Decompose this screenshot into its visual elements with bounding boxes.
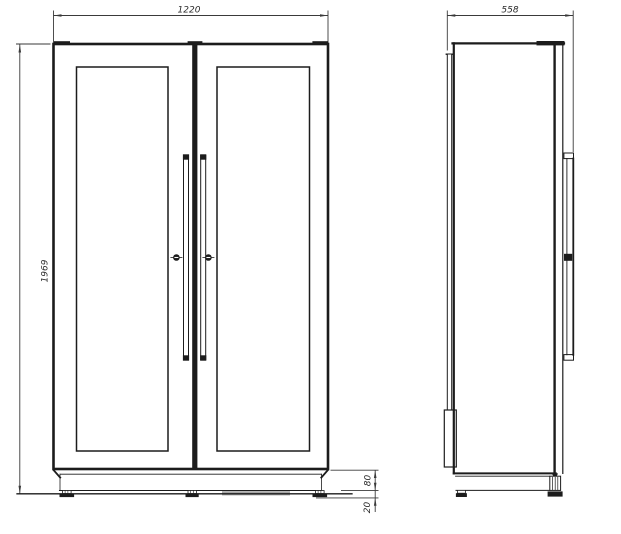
drawing-sheet: 1220 1969 <box>0 0 621 534</box>
foot-screw <box>188 491 197 494</box>
handle-cap <box>200 355 206 360</box>
dimension-clearance-label: 20 <box>363 502 373 514</box>
foot-screw <box>457 490 465 493</box>
cabinet-outline <box>54 44 329 469</box>
cabinet-side <box>444 41 573 497</box>
foot-front-side <box>548 473 563 496</box>
handle-cap <box>183 154 189 159</box>
top-hinge-left <box>54 41 70 45</box>
handle-left <box>183 154 189 360</box>
arrowhead-icon <box>374 483 377 491</box>
dimension-width-label: 1220 <box>178 6 201 16</box>
dimension-height: 1969 <box>16 44 51 494</box>
plinth-side <box>456 476 550 490</box>
dimension-depth-label: 558 <box>501 6 518 16</box>
corner-bevel <box>321 470 327 477</box>
side-view: 558 <box>444 6 573 498</box>
handle-side-profile <box>564 153 574 360</box>
top-hinge-right <box>312 41 328 45</box>
arrowhead-icon <box>19 45 22 53</box>
handle-bracket <box>564 355 574 361</box>
dimension-plinth-label: 80 <box>364 475 374 487</box>
foot-screw <box>316 491 325 494</box>
lock-block <box>564 254 572 261</box>
arrowhead-icon <box>19 486 22 494</box>
handle-cap <box>183 355 189 360</box>
back-rail <box>447 54 451 410</box>
arrowhead-icon <box>374 498 377 506</box>
front-view: 1220 1969 <box>16 6 379 514</box>
technical-drawing: 1220 1969 <box>0 0 621 534</box>
foot-plate <box>548 491 563 496</box>
arrowhead-icon <box>374 470 377 478</box>
arrowhead-icon <box>447 14 455 17</box>
door-divider <box>192 44 197 469</box>
dimension-width: 1220 <box>54 6 329 44</box>
handle-bracket <box>564 153 574 159</box>
foot-rear-side <box>456 490 467 497</box>
arrowhead-icon <box>54 14 62 17</box>
arrowhead-icon <box>565 14 573 17</box>
cabinet-front <box>17 41 352 497</box>
arrowhead-icon <box>320 14 328 17</box>
foot-screw <box>63 491 72 494</box>
dimension-base: 80 20 <box>316 470 379 513</box>
foot-plate <box>456 493 467 497</box>
handle-bar <box>184 156 189 360</box>
corner-bevel <box>54 470 60 477</box>
top-hinge-cover <box>537 41 565 45</box>
handle-cap <box>200 154 206 159</box>
dimension-height-label: 1969 <box>41 259 51 282</box>
top-hinge-center <box>188 41 203 45</box>
